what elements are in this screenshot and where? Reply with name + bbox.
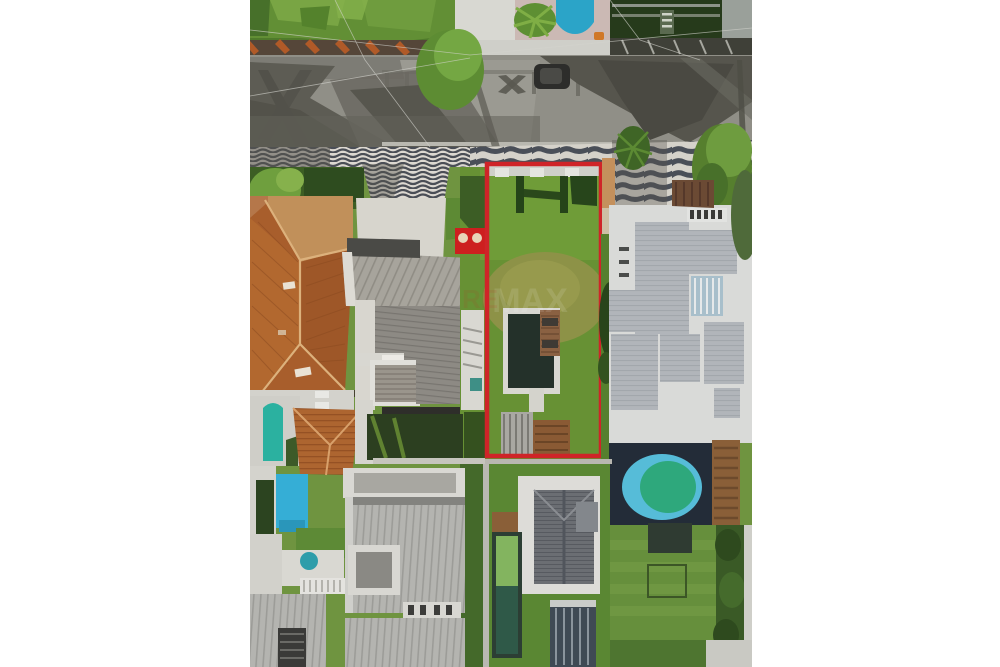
svg-text:RE: RE xyxy=(462,284,498,314)
svg-text:MAX: MAX xyxy=(492,282,568,320)
